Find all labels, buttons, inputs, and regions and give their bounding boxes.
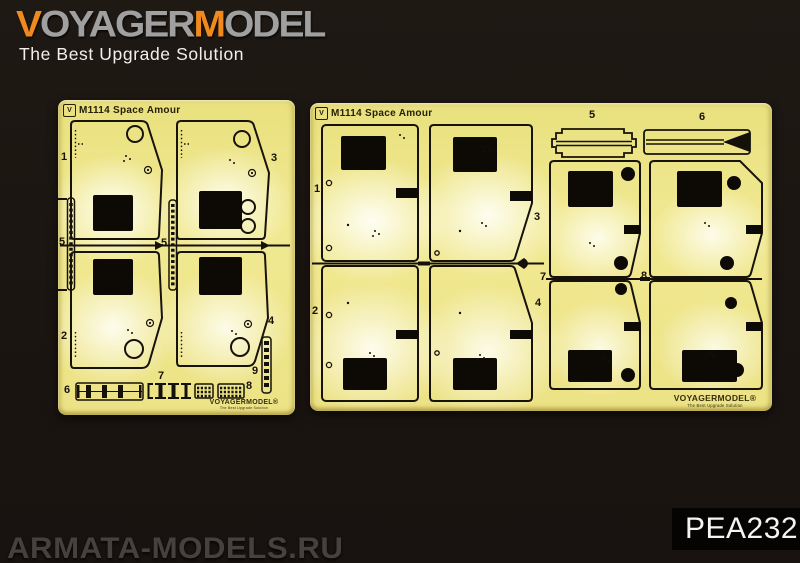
part-label: 7 <box>158 371 164 382</box>
part-label: 3 <box>271 153 277 164</box>
part-label: 6 <box>64 385 70 396</box>
photoetch-fret-right: V M1114 Space Amour 5 6 1 3 7 8 2 4 VOYA… <box>310 103 772 411</box>
voyager-mark-icon: V <box>315 107 328 120</box>
part-label: 7 <box>540 272 546 283</box>
brand-tagline: The Best Upgrade Solution <box>19 44 324 65</box>
fret-left-artwork <box>58 100 295 415</box>
brand-letters-odel: ODEL <box>224 4 324 45</box>
brand-letter-m: M <box>193 4 224 45</box>
brand-name: VOYAGERMODEL <box>16 6 324 45</box>
part-label: 8 <box>641 271 647 282</box>
part-label: 8 <box>246 381 252 392</box>
brand-letter-v: V <box>16 4 40 45</box>
fret-left-header: V M1114 Space Amour <box>63 104 180 117</box>
fret-right-title: M1114 Space Amour <box>331 108 432 119</box>
fret-right-artwork <box>310 103 772 411</box>
part-label: 4 <box>268 316 274 327</box>
product-photo: VOYAGERMODEL The Best Upgrade Solution <box>0 0 800 563</box>
part-label: 5 <box>589 110 595 121</box>
part-label: 1 <box>61 152 67 163</box>
photoetch-fret-left: V M1114 Space Amour 1 3 5 5 2 4 6 7 8 9 … <box>58 100 295 415</box>
part-label: 5 <box>59 237 65 248</box>
part-label: 9 <box>252 366 258 377</box>
fret-left-brand-etch: VOYAGERMODEL® The Best Upgrade Solution <box>209 399 279 411</box>
part-label: 6 <box>699 112 705 123</box>
brand-letters-oyager: OYAGER <box>40 4 193 45</box>
brand-logo: VOYAGERMODEL The Best Upgrade Solution <box>16 6 324 65</box>
part-label: 5 <box>161 238 167 249</box>
fret-left-title: M1114 Space Amour <box>79 105 180 116</box>
product-code-box: PEA232 <box>672 508 800 550</box>
part-label: 4 <box>535 298 541 309</box>
fret-right-brand-etch: VOYAGERMODEL® The Best Upgrade Solution <box>667 394 763 408</box>
product-code: PEA232 <box>672 512 798 546</box>
voyager-mark-icon: V <box>63 104 76 117</box>
site-watermark: ARMATA-MODELS.RU <box>7 532 343 563</box>
fret-right-header: V M1114 Space Amour <box>315 107 432 120</box>
part-label: 3 <box>534 212 540 223</box>
part-label: 2 <box>61 331 67 342</box>
part-label: 2 <box>312 306 318 317</box>
part-label: 1 <box>314 184 320 195</box>
